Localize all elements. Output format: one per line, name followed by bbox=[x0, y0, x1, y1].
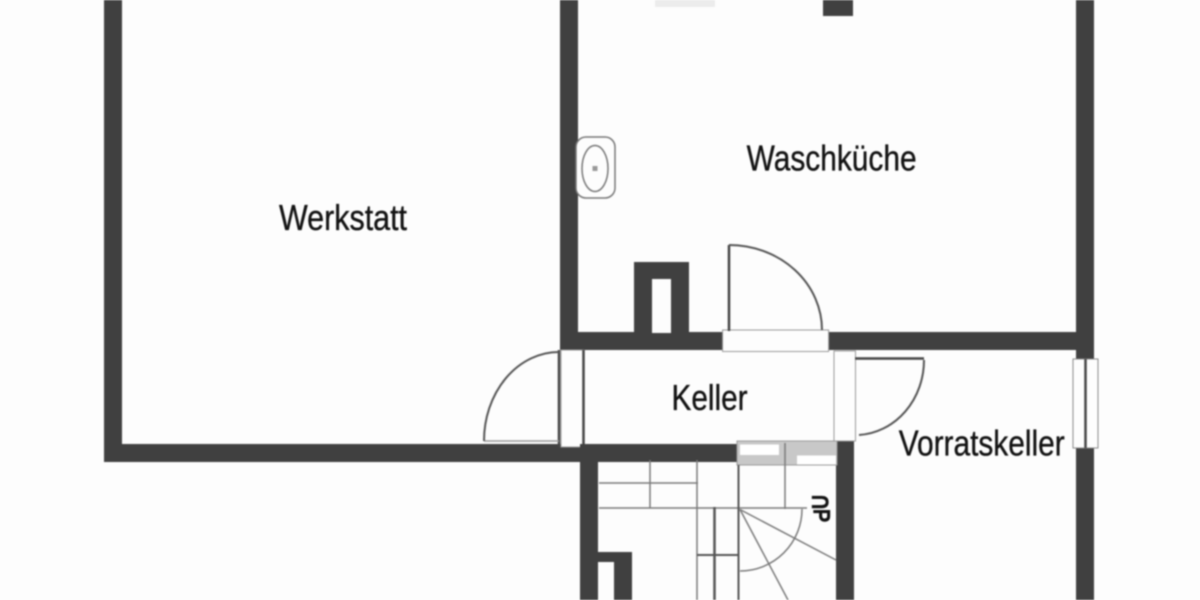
svg-text:Keller: Keller bbox=[672, 377, 748, 418]
svg-text:P: P bbox=[808, 509, 835, 523]
svg-text:U: U bbox=[808, 495, 835, 510]
svg-text:Werkstatt: Werkstatt bbox=[279, 197, 407, 238]
svg-text:Waschküche: Waschküche bbox=[747, 138, 917, 179]
svg-text:Vorratskeller: Vorratskeller bbox=[899, 423, 1065, 464]
